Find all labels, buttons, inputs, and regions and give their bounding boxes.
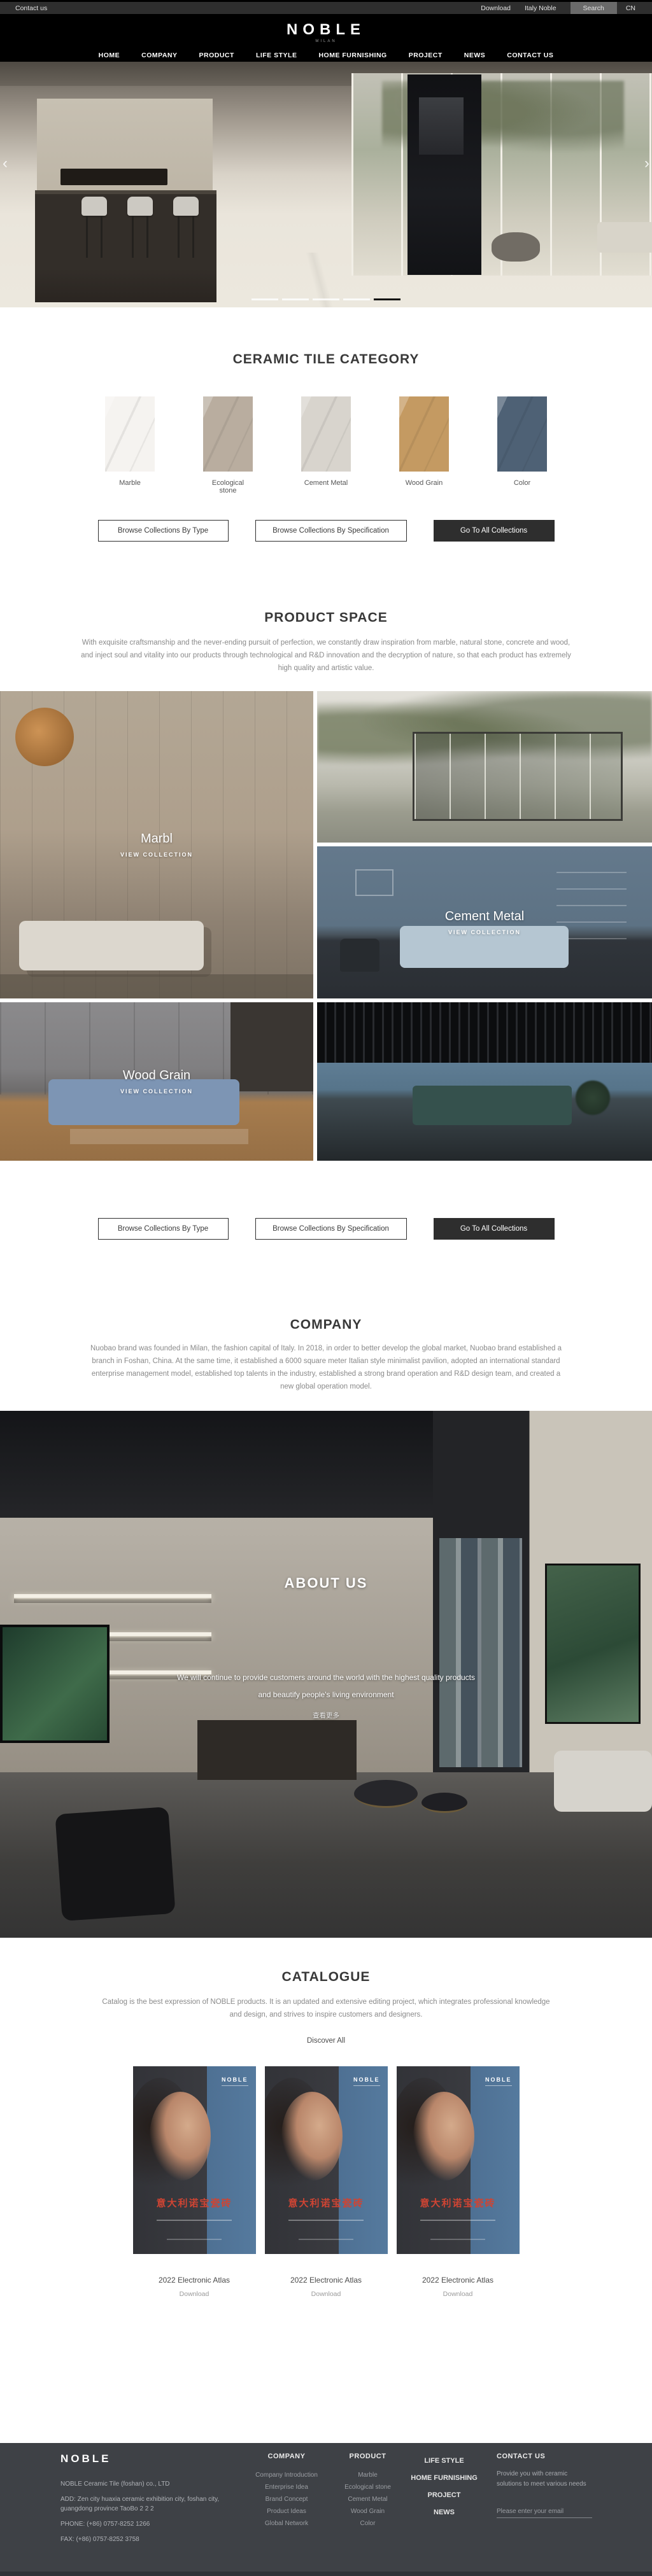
poster-brand-underline [222,2085,248,2086]
stool-seat [127,197,153,216]
about-photo-cabinet [197,1720,357,1780]
footer-address: ADD: Zen city huaxia ceramic exhibition … [60,2495,229,2514]
tile-swatch-cement-metal[interactable] [301,396,351,472]
footer-link[interactable]: Marble [334,2469,401,2481]
product-space-grid: Marbl VIEW COLLECTION Cement Metal VIEW … [0,691,652,1161]
decor-sofa [48,1079,239,1125]
decor-sofa [19,921,204,970]
nav-item-project[interactable]: PROJECT [398,49,453,62]
decor-rug [70,1129,248,1144]
about-us-description: We will continue to provide customers ar… [0,1669,652,1703]
nav-item-news[interactable]: NEWS [453,49,497,62]
footer-column-contact: CONTACT US Provide you with ceramic solu… [497,2453,599,2550]
tile-swatch-color[interactable] [497,396,547,472]
tile-column-wood-grain: Wood Grain [399,396,450,494]
carousel-dash-3[interactable] [313,298,339,300]
collection-name: Cement Metal [445,909,525,924]
poster-brand-logo: NOBLE [353,2076,380,2083]
nav-item-contact-us[interactable]: CONTACT US [496,49,564,62]
tile-label: Color [497,479,548,487]
view-collection-link: VIEW COLLECTION [120,851,193,858]
go-to-all-collections-button[interactable]: Go To All Collections [434,1218,555,1240]
footer-link-home-furnishing[interactable]: HOME FURNISHING [407,2470,481,2487]
discover-all-link[interactable]: Discover All [307,2037,345,2045]
about-photo-sofa [554,1751,652,1812]
site-footer: NOBLE NOBLE Ceramic Tile (foshan) co., L… [0,2443,652,2576]
catalogue-section: CATALOGUE Catalog is the best expression… [0,1938,652,2443]
decor-sofa [413,1086,572,1125]
go-to-all-collections-button[interactable]: Go To All Collections [434,520,555,542]
decor-wall-frame [355,869,393,896]
hero-carousel: ‹ › [0,62,652,307]
decor-chair [340,939,379,972]
footer-brand-logo: NOBLE [60,2453,245,2465]
about-photo-coffee-table [422,1793,467,1813]
section-title-company: COMPANY [0,1317,652,1333]
nav-item-home-furnishing[interactable]: HOME FURNISHING [308,49,397,62]
tile-swatches: Marble Ecological stone Cement Metal Woo… [0,396,652,494]
footer-column-title: CONTACT US [497,2453,599,2460]
company-section: COMPANY Nuobao brand was founded in Mila… [0,1317,652,1393]
company-description: Nuobao brand was founded in Milan, the f… [84,1343,568,1393]
footer-column-title: PRODUCT [334,2453,401,2460]
section-title-product-space: PRODUCT SPACE [0,610,652,626]
poster-subtext-line [157,2220,232,2221]
stool-seat [81,197,107,216]
footer-link-news[interactable]: NEWS [407,2504,481,2521]
footer-link[interactable]: Brand Concept [245,2493,328,2505]
poster-headline: 意大利诺宝瓷砖 [133,2196,256,2209]
stool-seat [173,197,199,216]
poster-model-face [281,2092,343,2181]
collection-card-wood-grain[interactable]: Wood Grain VIEW COLLECTION [0,1002,313,1161]
poster-brand-underline [485,2085,512,2086]
hero-photo-wardrobe [407,74,481,275]
poster-brand-logo: NOBLE [485,2076,512,2083]
carousel-dash-5-active[interactable] [374,298,400,300]
tile-label: Cement Metal [301,479,351,487]
download-link[interactable]: Download [481,4,511,12]
brand-logo-subtitle: MILAN [0,39,652,43]
footer-link[interactable]: Global Network [245,2517,328,2530]
about-photo-coffee-table [354,1780,418,1808]
contact-us-link[interactable]: Contact us [15,4,47,12]
footer-link[interactable]: Product Ideas [245,2505,328,2517]
footer-fax: FAX: (+86) 0757-8252 3758 [60,2535,229,2544]
hero-photo-stool [173,164,199,259]
poster-brand-logo: NOBLE [222,2076,248,2083]
browse-by-type-button[interactable]: Browse Collections By Type [98,520,229,542]
decor-floor [0,974,313,998]
footer-column-sections: LIFE STYLE HOME FURNISHING PROJECT NEWS [407,2453,481,2550]
catalogue-description: Catalog is the best expression of NOBLE … [97,1996,555,2022]
collection-card-pavilion[interactable] [317,691,652,843]
browse-by-type-button[interactable]: Browse Collections By Type [98,1218,229,1240]
site-header: NOBLE MILAN HOME COMPANY PRODUCT LIFE ST… [0,14,652,62]
footer-company-name: NOBLE Ceramic Tile (foshan) co., LTD [60,2479,229,2489]
catalogue-poster-cover[interactable]: NOBLE 意大利诺宝瓷砖 [265,2066,388,2254]
decor-sofa [400,926,569,968]
hero-photo-bench [597,222,652,253]
about-photo-armchair [55,1807,175,1921]
poster-headline: 意大利诺宝瓷砖 [265,2196,388,2209]
tile-column-color: Color [497,396,548,494]
catalogue-item: NOBLE 意大利诺宝瓷砖 2022 Electronic Atlas Down… [265,2066,388,2299]
collection-buttons-row: Browse Collections By Type Browse Collec… [0,1218,652,1240]
footer-column-product: PRODUCT Marble Ecological stone Cement M… [334,2453,401,2550]
top-utility-bar: Contact us Download Italy Noble Search C… [0,0,652,14]
about-us-overlay: ABOUT US We will continue to provide cus… [0,1411,652,1720]
stool-legs [178,216,194,258]
footer-content: NOBLE NOBLE Ceramic Tile (foshan) co., L… [0,2443,652,2550]
stool-legs [132,216,148,258]
catalogue-item: NOBLE 意大利诺宝瓷砖 2022 Electronic Atlas Down… [397,2066,520,2299]
poster-subtext-line [430,2239,485,2240]
ceramic-tile-category-section: CERAMIC TILE CATEGORY Marble Ecological … [0,307,652,598]
footer-link-project[interactable]: PROJECT [407,2487,481,2504]
poster-brand-underline [353,2085,380,2086]
catalogue-poster-cover[interactable]: NOBLE 意大利诺宝瓷砖 [133,2066,256,2254]
catalogue-name: 2022 Electronic Atlas [133,2276,256,2285]
footer-column-title: COMPANY [245,2453,328,2460]
hero-photo-stool [81,164,107,259]
footer-link[interactable]: Enterprise Idea [245,2481,328,2493]
tile-label: Wood Grain [399,479,450,487]
footer-phone: PHONE: (+86) 0757-8252 1266 [60,2519,229,2529]
nav-item-life-style[interactable]: LIFE STYLE [245,49,308,62]
collection-card-lounge[interactable] [317,1002,652,1161]
about-us-banner: ABOUT US We will continue to provide cus… [0,1411,652,1938]
browse-by-specification-button[interactable]: Browse Collections By Specification [255,1218,407,1240]
footer-link-life-style[interactable]: LIFE STYLE [407,2453,481,2470]
carousel-dash-4[interactable] [343,298,370,300]
section-title-catalogue: CATALOGUE [0,1970,652,1985]
search-button[interactable]: Search [570,2,617,14]
catalogue-poster-cover[interactable]: NOBLE 意大利诺宝瓷砖 [397,2066,520,2254]
tile-swatch-marble[interactable] [105,396,155,472]
poster-headline: 意大利诺宝瓷砖 [397,2196,520,2209]
browse-by-specification-button[interactable]: Browse Collections By Specification [255,520,407,542]
tile-column-marble: Marble [104,396,155,494]
about-line-2: and beautify people's living environment [0,1686,652,1703]
poster-subtext-line [420,2220,495,2221]
catalogue-item: NOBLE 意大利诺宝瓷砖 2022 Electronic Atlas Down… [133,2066,256,2299]
poster-subtext-line [288,2220,364,2221]
footer-brand-block: NOBLE NOBLE Ceramic Tile (foshan) co., L… [60,2453,245,2550]
footer-link[interactable]: Company Introduction [245,2469,328,2481]
tile-label: Ecological stone [202,479,253,494]
product-space-description: With exquisite craftsmanship and the nev… [78,637,574,675]
decor-glass-house [413,732,623,821]
nav-item-home[interactable]: HOME [88,49,131,62]
section-title-category: CERAMIC TILE CATEGORY [0,352,652,367]
view-more-link[interactable]: 查看更多 [0,1711,652,1720]
carousel-prev-icon[interactable]: ‹ [3,156,8,171]
section-title-about-us: ABOUT US [0,1575,652,1592]
email-subscribe-input[interactable] [497,2505,592,2518]
carousel-dash-2[interactable] [282,298,309,300]
top-utility-right: Download Italy Noble Search CN [481,2,652,14]
footer-link[interactable]: Cement Metal [334,2493,401,2505]
brand-logo[interactable]: NOBLE [0,14,652,39]
hero-photo-stool [127,164,153,259]
decor-dark-panel [230,1002,313,1091]
product-space-section: PRODUCT SPACE With exquisite craftsmansh… [0,598,652,1240]
download-catalogue-link[interactable]: Download [443,2290,473,2298]
catalogue-name: 2022 Electronic Atlas [265,2276,388,2285]
poster-subtext-line [167,2239,222,2240]
decor-mirror [15,708,74,766]
catalogue-name: 2022 Electronic Atlas [397,2276,520,2285]
carousel-dash-1[interactable] [252,298,278,300]
download-catalogue-link[interactable]: Download [180,2290,209,2298]
collection-name: Marbl [141,832,173,846]
carousel-next-icon[interactable]: › [644,156,649,171]
language-toggle[interactable]: CN [626,4,635,12]
footer-link[interactable]: Wood Grain [334,2505,401,2517]
poster-subtext-line [299,2239,353,2240]
decor-ceiling-slats [317,1002,652,1063]
tile-swatch-ecological-stone[interactable] [203,396,253,472]
about-line-1: We will continue to provide customers ar… [0,1669,652,1686]
collection-card-marbl[interactable]: Marbl VIEW COLLECTION [0,691,313,998]
catalogue-posters-row: NOBLE 意大利诺宝瓷砖 2022 Electronic Atlas Down… [0,2066,652,2299]
tile-label: Marble [104,479,155,487]
nav-item-company[interactable]: COMPANY [131,49,188,62]
poster-model-face [413,2092,474,2181]
carousel-pagination [252,298,400,300]
decor-plant [576,1081,610,1115]
tile-column-ecological-stone: Ecological stone [202,396,253,494]
collection-buttons-row: Browse Collections By Type Browse Collec… [0,520,652,542]
poster-model-face [150,2092,211,2181]
noble-homepage: Contact us Download Italy Noble Search C… [0,0,652,2576]
download-catalogue-link[interactable]: Download [311,2290,341,2298]
footer-link[interactable]: Color [334,2517,401,2530]
stool-legs [86,216,103,258]
main-navigation: HOME COMPANY PRODUCT LIFE STYLE HOME FUR… [0,49,652,62]
footer-link[interactable]: Ecological stone [334,2481,401,2493]
italy-noble-link[interactable]: Italy Noble [525,4,556,12]
tile-column-cement-metal: Cement Metal [301,396,351,494]
collection-card-cement-metal[interactable]: Cement Metal VIEW COLLECTION [317,846,652,998]
footer-contact-blurb: Provide you with ceramic solutions to me… [497,2469,592,2490]
tile-swatch-wood-grain[interactable] [399,396,449,472]
nav-item-product[interactable]: PRODUCT [188,49,245,62]
footer-column-company: COMPANY Company Introduction Enterprise … [245,2453,328,2550]
